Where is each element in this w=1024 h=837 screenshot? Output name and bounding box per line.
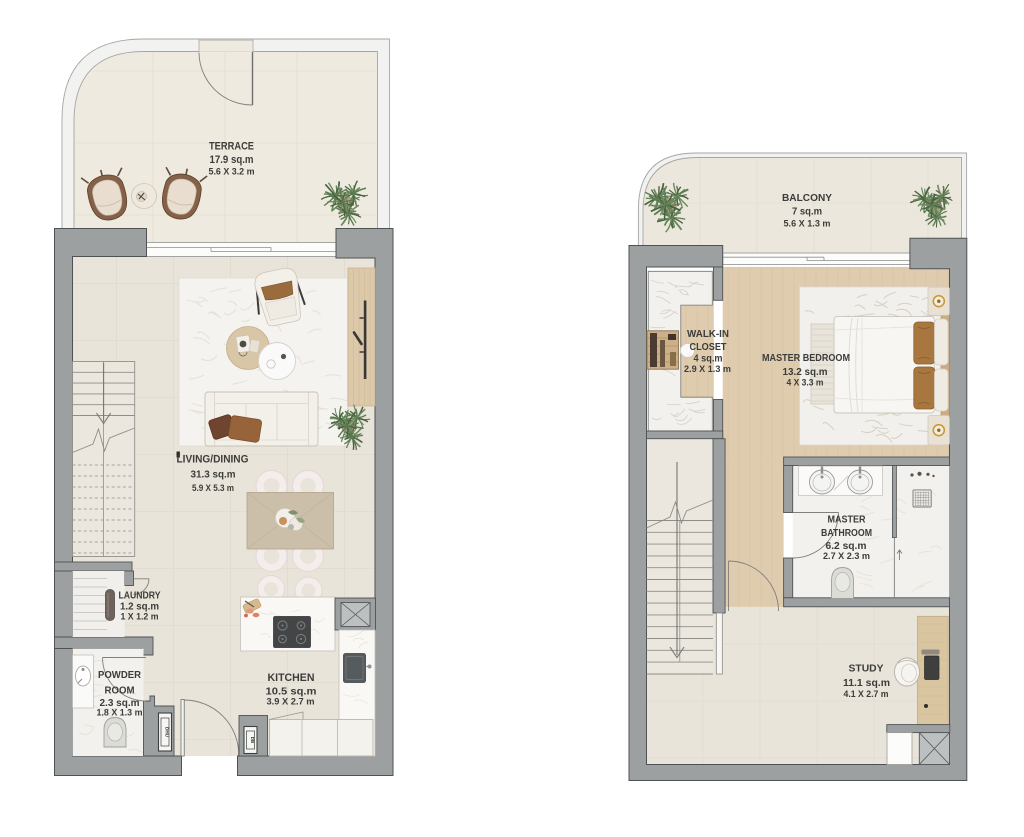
svg-text:KITCHEN: KITCHEN	[268, 672, 315, 684]
svg-text:5.6 X 3.2 m: 5.6 X 3.2 m	[209, 167, 255, 177]
svg-text:BATHROOM: BATHROOM	[821, 527, 872, 539]
svg-text:ROOM: ROOM	[105, 685, 135, 697]
svg-text:POWDER: POWDER	[98, 669, 141, 681]
svg-text:STUDY: STUDY	[849, 663, 884, 675]
svg-text:BALCONY: BALCONY	[782, 192, 832, 204]
svg-text:17.9 sq.m: 17.9 sq.m	[210, 154, 254, 166]
svg-text:MASTER BEDROOM: MASTER BEDROOM	[762, 352, 850, 364]
svg-text:4 sq.m: 4 sq.m	[694, 354, 723, 365]
svg-text:DHU: DHU	[165, 727, 170, 738]
svg-text:4 X 3.3 m: 4 X 3.3 m	[787, 378, 824, 388]
svg-text:31.3 sq.m: 31.3 sq.m	[191, 469, 236, 481]
svg-text:DB: DB	[250, 737, 255, 744]
svg-text:LAUNDRY: LAUNDRY	[119, 590, 161, 602]
svg-text:CLOSET: CLOSET	[690, 341, 728, 353]
svg-text:3.9 X 2.7 m: 3.9 X 2.7 m	[267, 697, 315, 707]
svg-text:LIVING/DINING: LIVING/DINING	[177, 454, 249, 466]
svg-text:11.1 sq.m: 11.1 sq.m	[843, 678, 890, 689]
svg-text:2.7 X 2.3 m: 2.7 X 2.3 m	[823, 551, 870, 561]
svg-text:TERRACE: TERRACE	[209, 141, 254, 153]
svg-text:13.2 sq.m: 13.2 sq.m	[783, 367, 828, 378]
svg-text:4.1 X 2.7 m: 4.1 X 2.7 m	[844, 689, 889, 699]
svg-text:5.9 X 5.3 m: 5.9 X 5.3 m	[192, 483, 234, 493]
svg-text:2.9 X 1.3 m: 2.9 X 1.3 m	[684, 364, 731, 374]
svg-text:7 sq.m: 7 sq.m	[792, 207, 822, 218]
svg-text:1.8 X 1.3 m: 1.8 X 1.3 m	[97, 708, 143, 718]
svg-text:5.6 X 1.3 m: 5.6 X 1.3 m	[784, 219, 831, 229]
svg-text:MASTER: MASTER	[828, 514, 866, 526]
svg-text:1 X 1.2 m: 1 X 1.2 m	[121, 612, 159, 622]
svg-text:WALK-IN: WALK-IN	[687, 328, 729, 340]
